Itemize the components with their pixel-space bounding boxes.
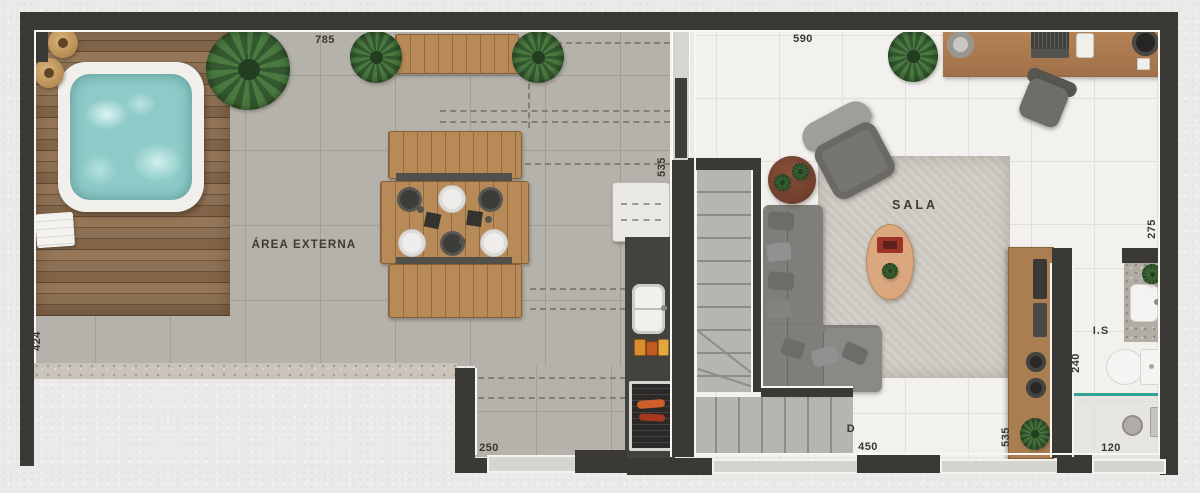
garden-bench <box>395 34 519 74</box>
stairs-upper-flight <box>697 170 753 392</box>
placemat <box>424 212 442 230</box>
cup <box>485 216 492 223</box>
wall-bottom-c <box>857 455 940 473</box>
projection-line <box>530 288 626 290</box>
projection-line <box>478 377 626 379</box>
grill-food <box>637 399 665 409</box>
decor-bowl <box>1026 352 1046 372</box>
bench-plant <box>350 31 402 83</box>
desk <box>943 28 1162 77</box>
wall-top <box>28 12 1178 30</box>
wall-trim <box>1050 263 1052 457</box>
laptop <box>1031 31 1069 58</box>
placemat <box>466 210 483 227</box>
shower-drain <box>1122 415 1143 436</box>
wall-trim <box>670 30 672 457</box>
cup <box>417 206 424 213</box>
wall-trim <box>761 386 853 388</box>
dining-table <box>380 181 529 264</box>
projection-line <box>478 397 626 399</box>
dining-bench-lower <box>388 264 522 318</box>
desk-lamp <box>947 31 974 58</box>
appliance-vent <box>621 203 661 205</box>
terrace-plant <box>206 28 290 110</box>
floor-plan: ÁREA EXTERNA SALA I.S D 785 590 424 535 … <box>0 0 1200 493</box>
sofa-pillow <box>767 211 795 232</box>
sideboard-plant <box>1020 418 1050 450</box>
sofa-pillow <box>766 299 791 319</box>
projection-line <box>440 121 670 123</box>
side-table-plant <box>774 174 791 191</box>
wall-trim <box>34 30 1160 32</box>
wall-bottom-a <box>575 450 627 473</box>
wall-stair-rail <box>761 388 853 397</box>
projection-line <box>556 42 670 44</box>
coffee-table-plant <box>882 263 898 279</box>
wall-right <box>1160 12 1178 475</box>
dim-sala-bottom: 450 <box>858 441 878 453</box>
wall-trim <box>475 368 477 455</box>
phone <box>1076 33 1094 58</box>
wall-trim <box>1158 30 1160 455</box>
bottle <box>634 339 646 356</box>
window-sill <box>1092 459 1166 474</box>
dim-bathroom-depth: 240 <box>1070 353 1082 373</box>
dining-bench-upper <box>388 131 522 179</box>
plate <box>438 185 466 213</box>
flush-button <box>1149 364 1154 369</box>
dim-terrace-bottom: 250 <box>479 442 499 454</box>
wall-trim <box>751 170 753 392</box>
pouf-stool <box>48 28 78 58</box>
pouf-stool <box>34 58 64 88</box>
wall-stair-top <box>688 158 761 170</box>
wall-trim <box>34 30 36 363</box>
plate <box>478 187 503 212</box>
wall-trim <box>761 170 763 388</box>
projection-line <box>530 308 626 310</box>
projection-line <box>440 110 670 112</box>
dim-office-right: 275 <box>1146 219 1158 239</box>
wall-trim <box>694 30 696 457</box>
dim-sala-top: 590 <box>793 33 813 45</box>
toilet-bowl <box>1106 349 1144 385</box>
sink-divider <box>635 308 662 310</box>
coffee-table-tray <box>877 237 903 253</box>
projection-line <box>525 163 670 165</box>
dim-terrace-top: 785 <box>315 34 335 46</box>
dim-terrace-left: 424 <box>31 331 43 351</box>
bathroom-vanity <box>1124 262 1162 342</box>
sideboard <box>1008 247 1054 459</box>
bottle <box>658 339 669 356</box>
side-table-plant <box>792 163 809 180</box>
wall-bathroom <box>1052 248 1072 458</box>
bottle <box>646 341 658 356</box>
glass-door-leaf <box>675 78 687 158</box>
terrace-sill <box>487 455 579 473</box>
room-label-bathroom: I.S <box>1093 325 1109 337</box>
towel <box>35 212 75 249</box>
sideboard-tray <box>1033 259 1047 299</box>
window-sill <box>940 459 1061 474</box>
wall-corner-foot <box>455 458 489 473</box>
dim-bathroom-width: 120 <box>1101 442 1121 454</box>
room-label-area-externa: ÁREA EXTERNA <box>252 239 357 251</box>
counter-sink <box>632 284 665 334</box>
sideboard-tray <box>1033 303 1047 337</box>
appliance <box>612 182 670 242</box>
coffee-table <box>866 224 914 300</box>
stairs-lower-flight <box>694 397 853 455</box>
appliance-vent <box>621 219 661 221</box>
sink-faucet <box>661 305 667 311</box>
door-d-threshold <box>712 459 861 474</box>
cup <box>459 238 466 245</box>
sofa-pillow <box>767 271 794 291</box>
terrace-edge-gravel <box>34 363 457 379</box>
sofa-pillow <box>766 242 792 263</box>
wall-left <box>20 50 34 466</box>
plate <box>398 229 426 257</box>
tray-item <box>883 241 897 249</box>
plate <box>480 229 508 257</box>
wall-bathroom-top <box>1122 248 1162 263</box>
hot-tub-water <box>70 74 192 200</box>
decor-bowl <box>1132 29 1159 56</box>
wall-trim <box>694 453 1160 455</box>
stair-direction-label: D <box>847 423 855 435</box>
decor-bowl <box>1026 378 1046 398</box>
kitchen-counter <box>625 237 675 458</box>
toilet <box>1106 348 1162 384</box>
bench-plant <box>512 31 564 83</box>
dim-kitchen-wall: 535 <box>656 157 668 177</box>
wall-divider <box>672 160 694 457</box>
grill-food <box>639 413 665 421</box>
wall-bottom-b <box>627 458 712 475</box>
room-label-sala: SALA <box>892 198 938 212</box>
dim-sideboard-wall: 535 <box>1000 427 1012 447</box>
desk-accessory <box>1137 58 1150 70</box>
side-table <box>768 156 816 204</box>
wall-stair-right <box>753 162 761 392</box>
office-plant <box>888 30 938 82</box>
